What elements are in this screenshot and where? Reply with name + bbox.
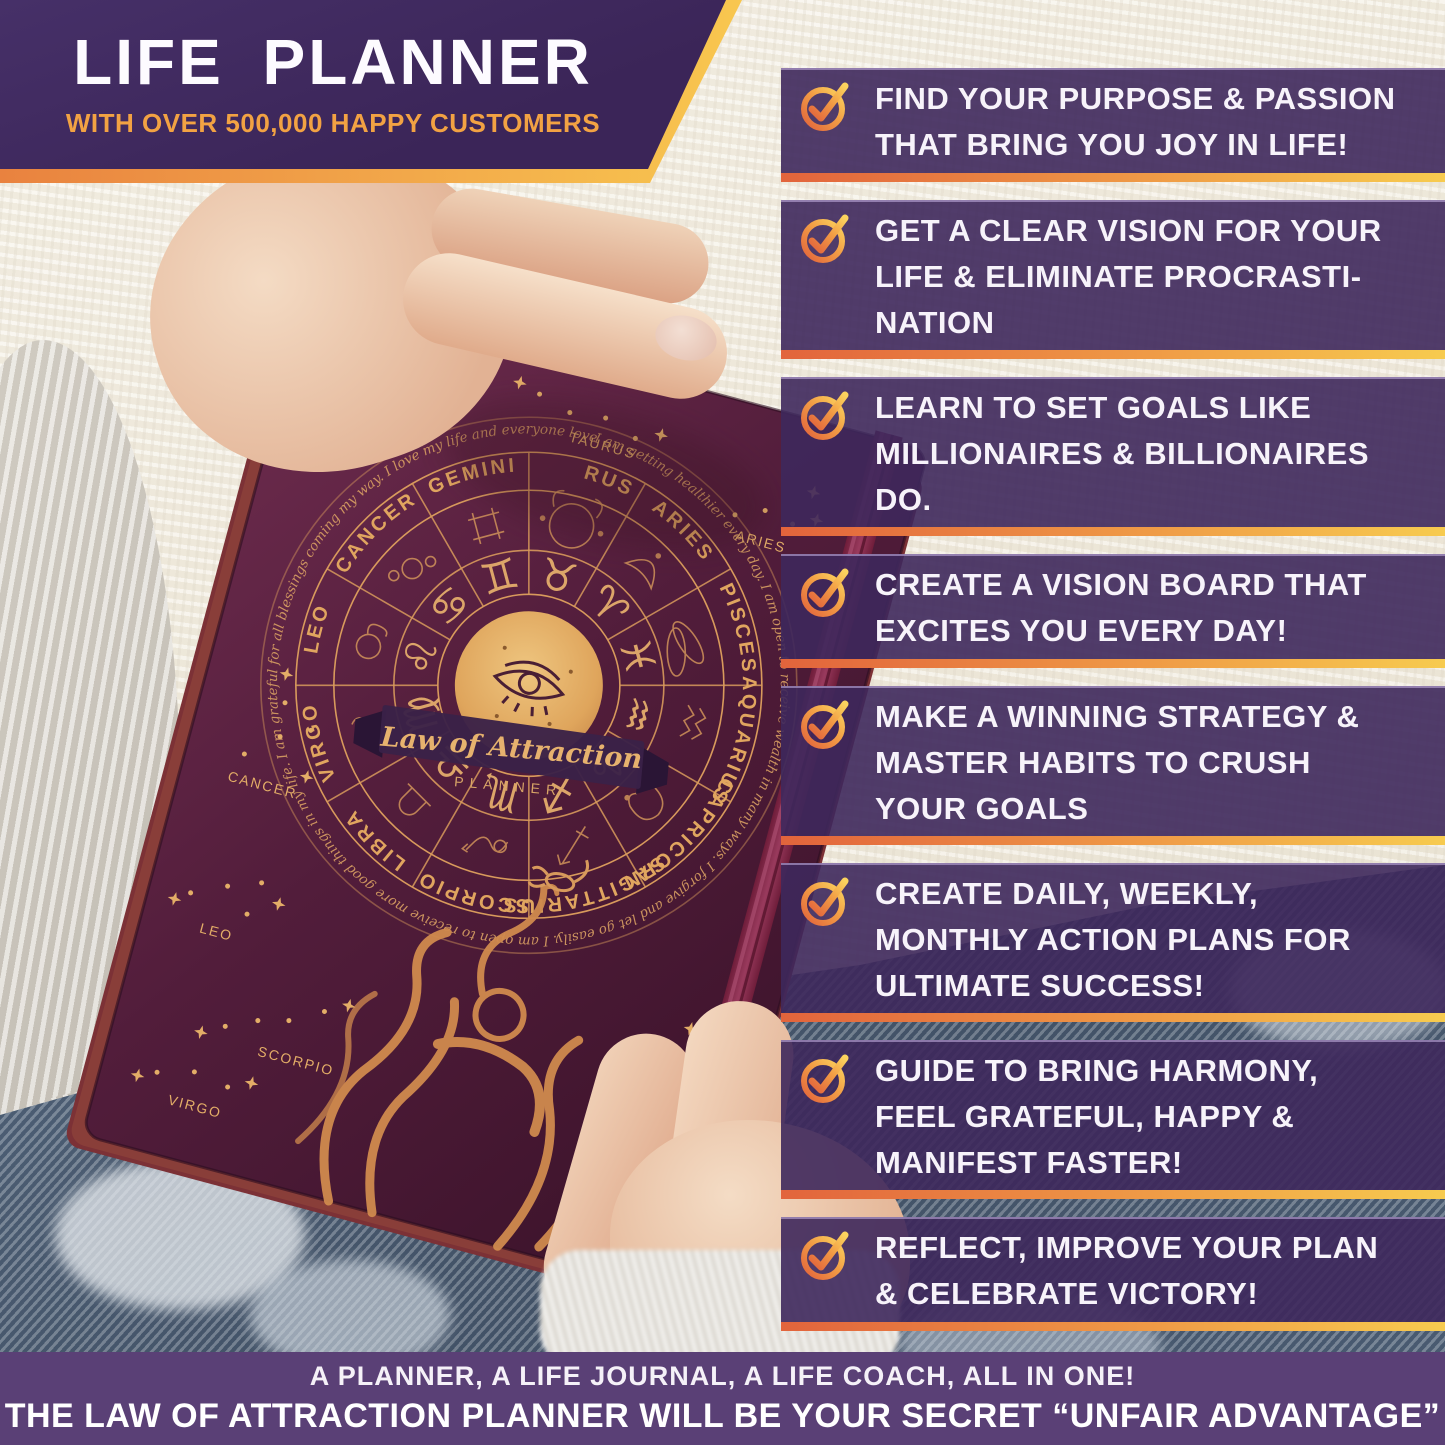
benefit-line: MILLIONAIRES & BILLIONAIRES — [875, 431, 1369, 477]
check-circle-icon — [797, 874, 851, 928]
check-circle-icon — [797, 1051, 851, 1105]
benefit-text: MAKE A WINNING STRATEGY & MASTER HABITS … — [875, 694, 1359, 832]
benefit-bar: FIND YOUR PURPOSE & PASSION THAT BRING Y… — [781, 68, 1445, 173]
benefit-bar: MAKE A WINNING STRATEGY & MASTER HABITS … — [781, 686, 1445, 836]
benefit-line: CREATE DAILY, WEEKLY, — [875, 871, 1351, 917]
benefit-line: DO. — [875, 477, 1369, 523]
benefit-line: CREATE A VISION BOARD THAT — [875, 562, 1367, 608]
benefit-bar: REFLECT, IMPROVE YOUR PLAN & CELEBRATE V… — [781, 1217, 1445, 1322]
benefit-line: FEEL GRATEFUL, HAPPY & — [875, 1094, 1318, 1140]
footer-banner: A PLANNER, A LIFE JOURNAL, A LIFE COACH,… — [0, 1352, 1445, 1445]
check-circle-icon — [797, 79, 851, 133]
benefit-line: GET A CLEAR VISION FOR YOUR — [875, 208, 1382, 254]
benefit-line: NATION — [875, 300, 1382, 346]
benefit-bar: LEARN TO SET GOALS LIKE MILLIONAIRES & B… — [781, 377, 1445, 527]
benefit-bar: CREATE A VISION BOARD THAT EXCITES YOU E… — [781, 554, 1445, 659]
benefit-line: FIND YOUR PURPOSE & PASSION — [875, 76, 1396, 122]
check-circle-icon — [797, 565, 851, 619]
benefit-line: THAT BRING YOU JOY IN LIFE! — [875, 122, 1396, 168]
benefit-line: EXCITES YOU EVERY DAY! — [875, 608, 1367, 654]
benefit-line: GUIDE TO BRING HARMONY, — [875, 1048, 1318, 1094]
benefit-line: REFLECT, IMPROVE YOUR PLAN — [875, 1225, 1378, 1271]
benefit-bar: CREATE DAILY, WEEKLY, MONTHLY ACTION PLA… — [781, 863, 1445, 1013]
footer-tagline: A PLANNER, A LIFE JOURNAL, A LIFE COACH,… — [310, 1361, 1136, 1392]
benefit-text: FIND YOUR PURPOSE & PASSION THAT BRING Y… — [875, 76, 1396, 168]
benefit-line: LIFE & ELIMINATE PROCRASTI- — [875, 254, 1382, 300]
benefit-text: CREATE A VISION BOARD THAT EXCITES YOU E… — [875, 562, 1367, 654]
title-banner: LIFE PLANNER WITH OVER 500,000 HAPPY CUS… — [0, 0, 726, 169]
product-image: I am getting healthier every day. I am o… — [0, 0, 1445, 1445]
benefit-text: LEARN TO SET GOALS LIKE MILLIONAIRES & B… — [875, 385, 1369, 523]
benefit-line: ULTIMATE SUCCESS! — [875, 963, 1351, 1009]
benefit-text: GET A CLEAR VISION FOR YOUR LIFE & ELIMI… — [875, 208, 1382, 346]
page-title: LIFE PLANNER — [73, 30, 593, 94]
benefit-line: MONTHLY ACTION PLANS FOR — [875, 917, 1351, 963]
customers-subtitle: WITH OVER 500,000 HAPPY CUSTOMERS — [66, 108, 600, 139]
check-circle-icon — [797, 211, 851, 265]
check-circle-icon — [797, 697, 851, 751]
check-circle-icon — [797, 388, 851, 442]
benefit-line: & CELEBRATE VICTORY! — [875, 1271, 1378, 1317]
benefit-text: REFLECT, IMPROVE YOUR PLAN & CELEBRATE V… — [875, 1225, 1378, 1317]
benefit-bar: GUIDE TO BRING HARMONY, FEEL GRATEFUL, H… — [781, 1040, 1445, 1190]
check-circle-icon — [797, 1228, 851, 1282]
benefit-text: CREATE DAILY, WEEKLY, MONTHLY ACTION PLA… — [875, 871, 1351, 1009]
benefit-line: MAKE A WINNING STRATEGY & — [875, 694, 1359, 740]
benefit-line: LEARN TO SET GOALS LIKE — [875, 385, 1369, 431]
benefit-line: YOUR GOALS — [875, 786, 1359, 832]
footer-headline: THE LAW OF ATTRACTION PLANNER WILL BE YO… — [5, 1397, 1441, 1436]
benefit-line: MANIFEST FASTER! — [875, 1140, 1318, 1186]
benefit-bar: GET A CLEAR VISION FOR YOUR LIFE & ELIMI… — [781, 200, 1445, 350]
benefit-line: MASTER HABITS TO CRUSH — [875, 740, 1359, 786]
benefit-text: GUIDE TO BRING HARMONY, FEEL GRATEFUL, H… — [875, 1048, 1318, 1186]
